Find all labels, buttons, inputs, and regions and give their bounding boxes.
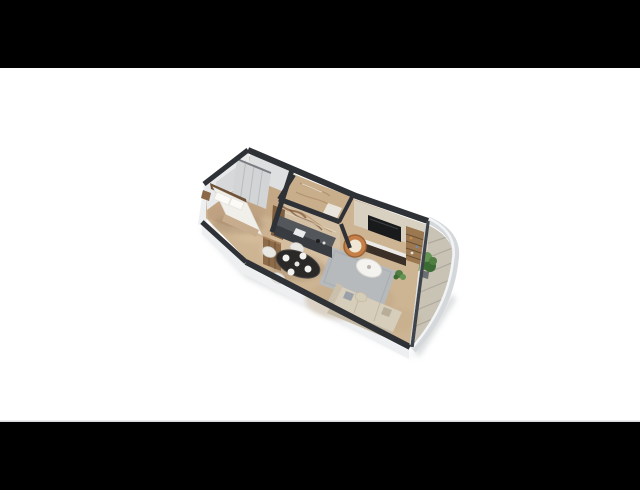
cooktop-pot xyxy=(316,239,320,243)
cooktop-pot xyxy=(323,242,326,245)
shelf-item xyxy=(410,237,413,240)
coffee-table-item xyxy=(367,265,371,269)
plant-leaf xyxy=(400,274,406,280)
frame-line xyxy=(0,421,640,422)
shelf-item xyxy=(416,246,419,249)
screenshot-stage xyxy=(0,0,640,490)
shelf-item xyxy=(411,252,414,255)
letterbox-top xyxy=(0,0,640,68)
plate xyxy=(300,253,307,260)
plate xyxy=(283,255,290,262)
plate xyxy=(288,269,295,276)
center-bowl xyxy=(295,262,300,267)
floor-plan-render xyxy=(0,0,640,490)
plant-leaf xyxy=(394,275,399,280)
plant-leaf xyxy=(429,257,437,265)
plate xyxy=(305,266,312,273)
letterbox-bottom xyxy=(0,422,640,490)
